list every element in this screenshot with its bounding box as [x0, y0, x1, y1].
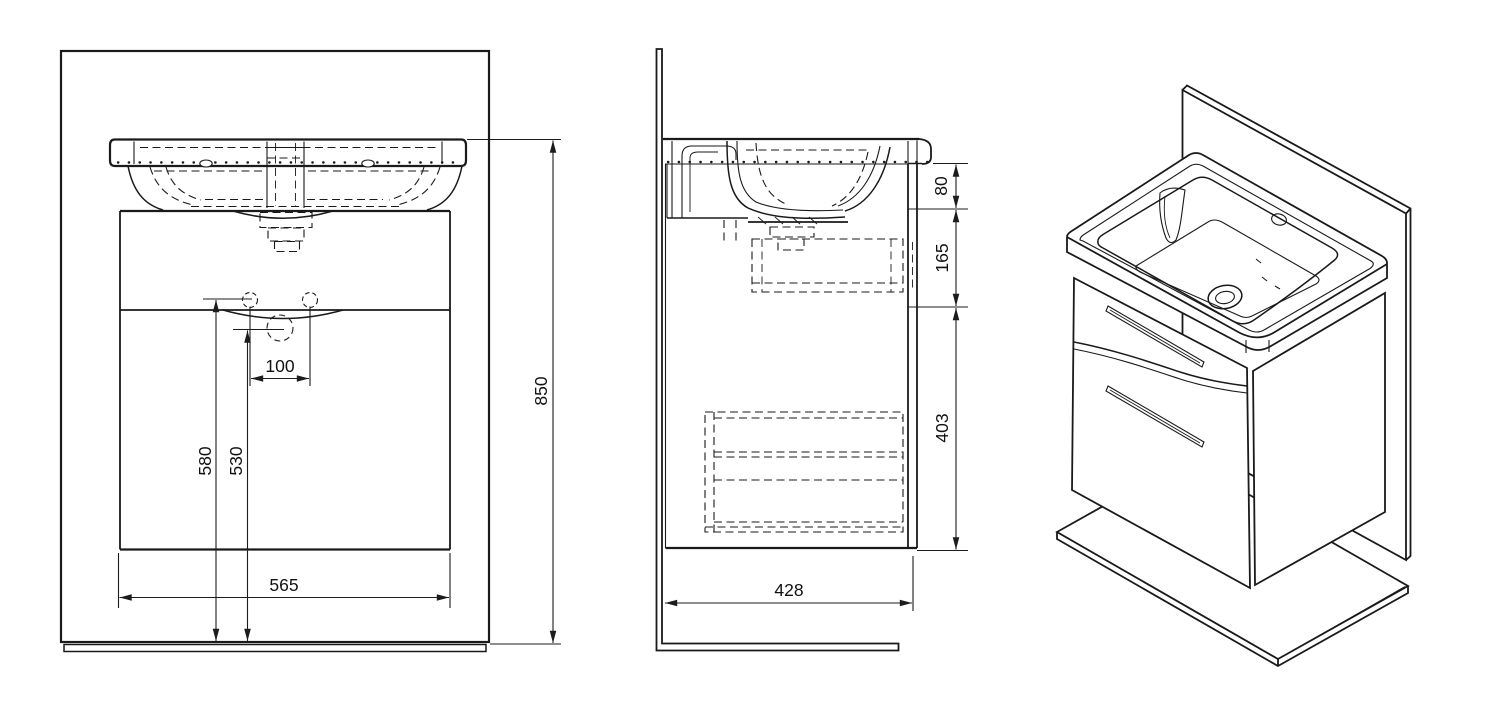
overflow-column-front	[267, 142, 304, 209]
dimensions-front: 100 580 530 565 850	[119, 140, 562, 645]
wall-panel-front	[61, 51, 489, 652]
dim-upper-section: 165	[932, 243, 952, 272]
washbasin-side	[663, 139, 931, 250]
dimensions-side: 80 165 403 428	[665, 164, 968, 612]
dim-overall-height: 850	[531, 376, 551, 405]
technical-drawing-canvas: 100 580 530 565 850	[0, 0, 1500, 708]
drawing-svg: 100 580 530 565 850	[0, 0, 1500, 708]
drawer-hidden-side	[705, 412, 903, 532]
handle-recess-front	[223, 310, 343, 319]
dim-floor-to-siphon: 530	[226, 446, 246, 475]
isometric-view	[1057, 86, 1411, 667]
faucet-hole-left	[243, 293, 258, 308]
faucet-hole-right	[303, 293, 318, 308]
siphon-space-hidden	[752, 239, 903, 292]
front-view: 100 580 530 565 850	[61, 51, 561, 652]
cabinet-front	[120, 211, 450, 550]
side-view: 80 165 403 428	[657, 49, 969, 651]
washbasin-front	[110, 140, 466, 252]
dim-floor-to-mount-holes: 580	[195, 446, 215, 475]
floor-panel-edge-front	[64, 645, 486, 652]
dim-drawer-section: 403	[932, 413, 952, 442]
dim-overall-depth: 428	[774, 580, 803, 600]
rim-fixing-hole	[362, 160, 374, 167]
rim-fixing-hole	[200, 160, 212, 167]
dim-faucet-hole-spacing: 100	[265, 356, 294, 376]
dim-basin-section: 80	[931, 176, 951, 196]
dim-cabinet-width: 565	[269, 575, 298, 595]
